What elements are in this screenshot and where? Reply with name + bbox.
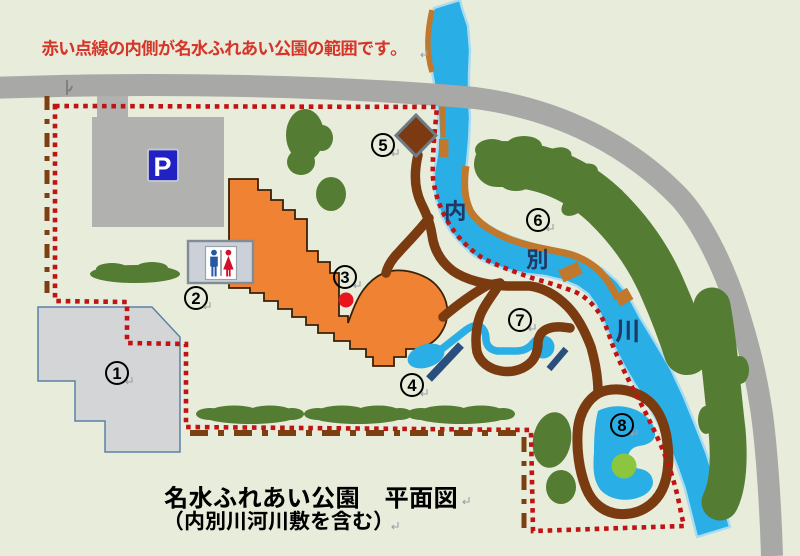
svg-text:5: 5: [378, 137, 387, 155]
svg-text:1: 1: [112, 365, 121, 383]
svg-text:4: 4: [407, 377, 417, 395]
svg-text:2: 2: [191, 290, 200, 308]
svg-text:7: 7: [515, 312, 524, 330]
svg-text:P: P: [153, 152, 171, 182]
svg-text:8: 8: [617, 417, 626, 435]
svg-text:3: 3: [340, 269, 349, 287]
svg-text:6: 6: [533, 212, 542, 230]
